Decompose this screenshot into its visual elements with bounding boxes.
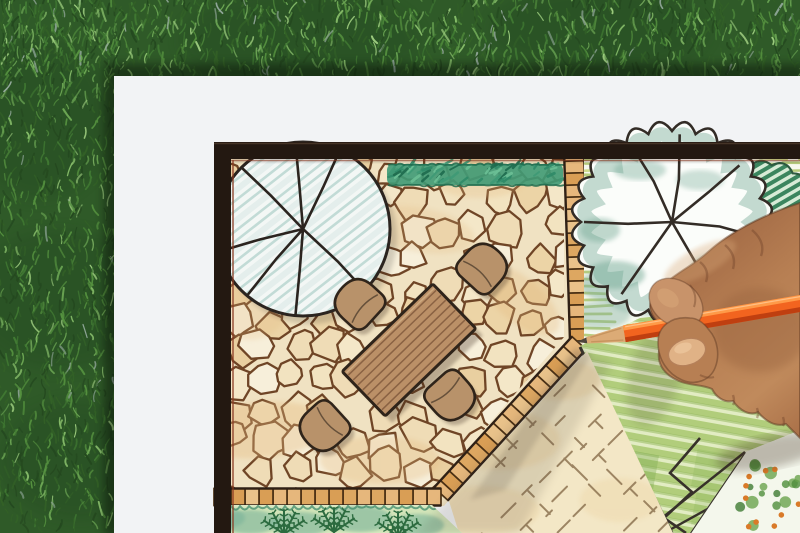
scene-canvas: Photograph: a designer's hand holding an… bbox=[0, 0, 800, 533]
photo-of-garden-plan-drawing: Photograph: a designer's hand holding an… bbox=[0, 0, 800, 533]
